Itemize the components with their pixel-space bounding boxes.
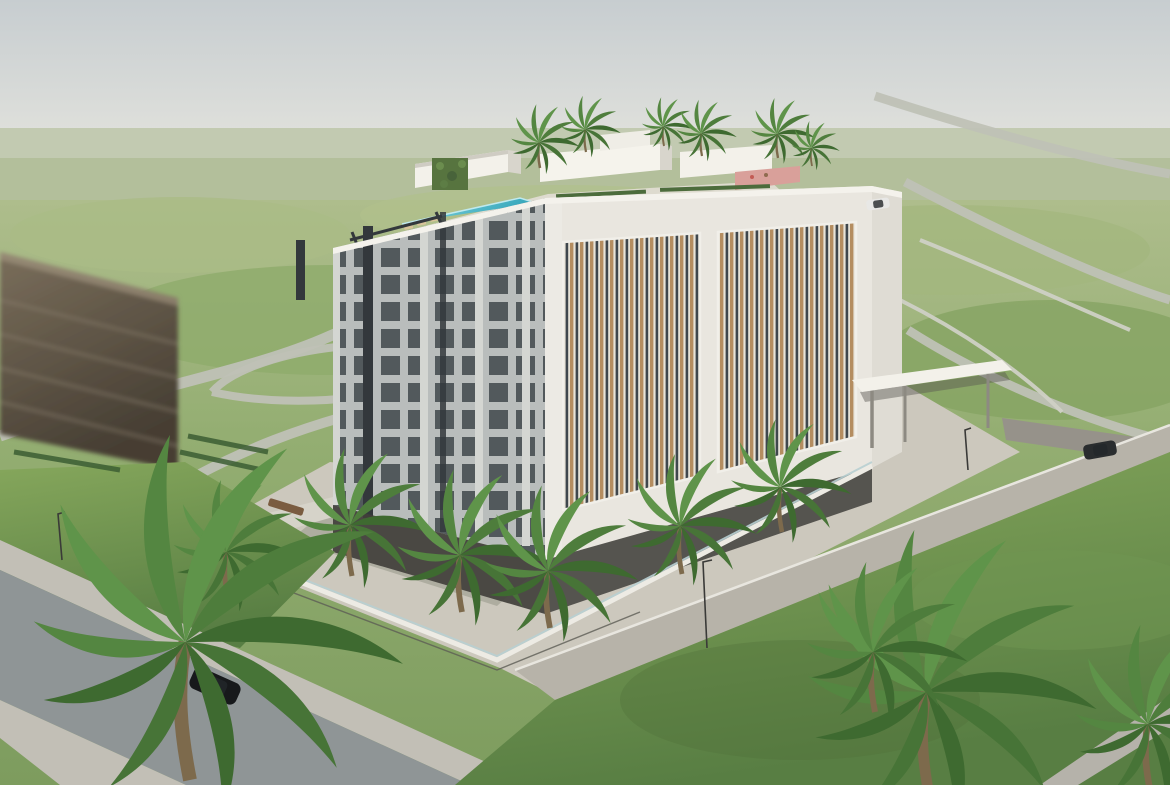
wood-louver-panel-right: [718, 222, 856, 472]
wood-louver-panel-left: [563, 233, 700, 510]
play-equipment: [764, 173, 768, 177]
rendered-image: [0, 0, 1170, 785]
corner-pier: [545, 198, 562, 560]
rooftop-green-wall: [432, 158, 468, 190]
play-equipment: [750, 175, 754, 179]
end-wall: [872, 186, 902, 468]
aerial-render-scene: [0, 0, 1170, 785]
